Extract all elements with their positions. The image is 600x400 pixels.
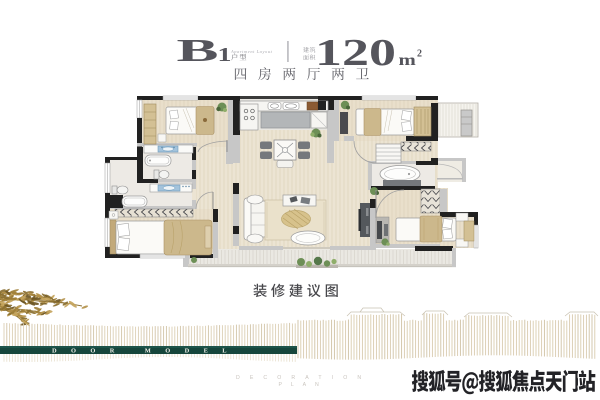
svg-text:B: B bbox=[177, 33, 219, 68]
svg-text:120: 120 bbox=[315, 31, 396, 73]
svg-text:2: 2 bbox=[417, 49, 422, 60]
svg-text:m: m bbox=[399, 51, 417, 69]
svg-text:Apartment Layout: Apartment Layout bbox=[230, 49, 273, 54]
svg-text:DECORATION: DECORATION bbox=[236, 375, 371, 381]
svg-text:PLAN: PLAN bbox=[279, 382, 328, 388]
svg-text:DOOR MODEL: DOOR MODEL bbox=[52, 347, 241, 354]
svg-text:1: 1 bbox=[218, 44, 232, 66]
